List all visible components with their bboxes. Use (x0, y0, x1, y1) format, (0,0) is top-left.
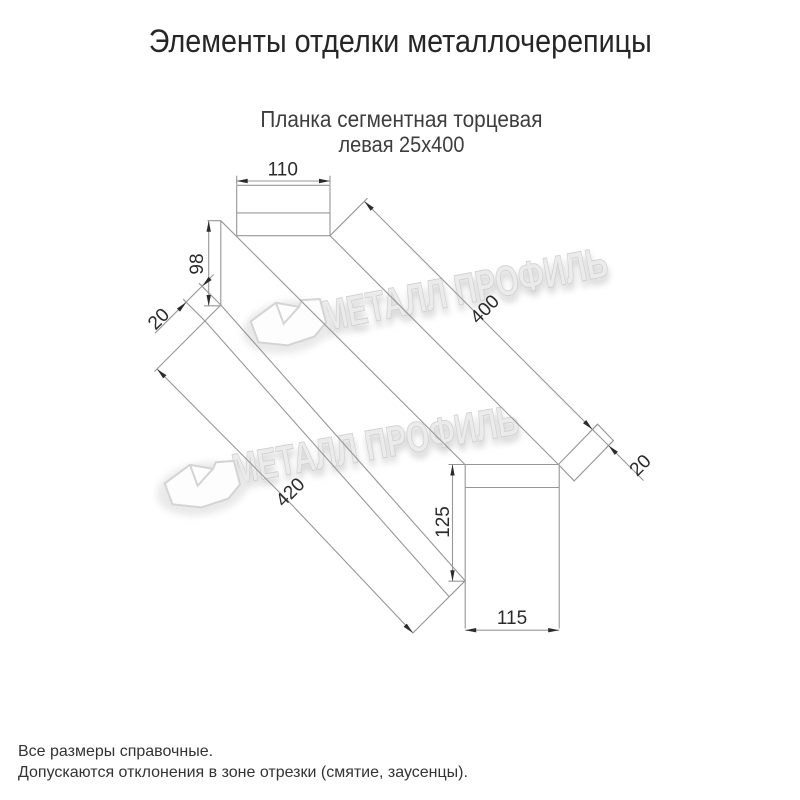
svg-text:20: 20 (626, 451, 656, 481)
svg-text:МЕТАЛЛ ПРОФИЛЬ: МЕТАЛЛ ПРОФИЛЬ (318, 238, 612, 340)
svg-text:115: 115 (497, 608, 527, 629)
svg-text:98: 98 (187, 253, 208, 274)
svg-text:20: 20 (144, 305, 174, 335)
svg-text:125: 125 (433, 506, 454, 538)
svg-text:110: 110 (268, 160, 298, 181)
